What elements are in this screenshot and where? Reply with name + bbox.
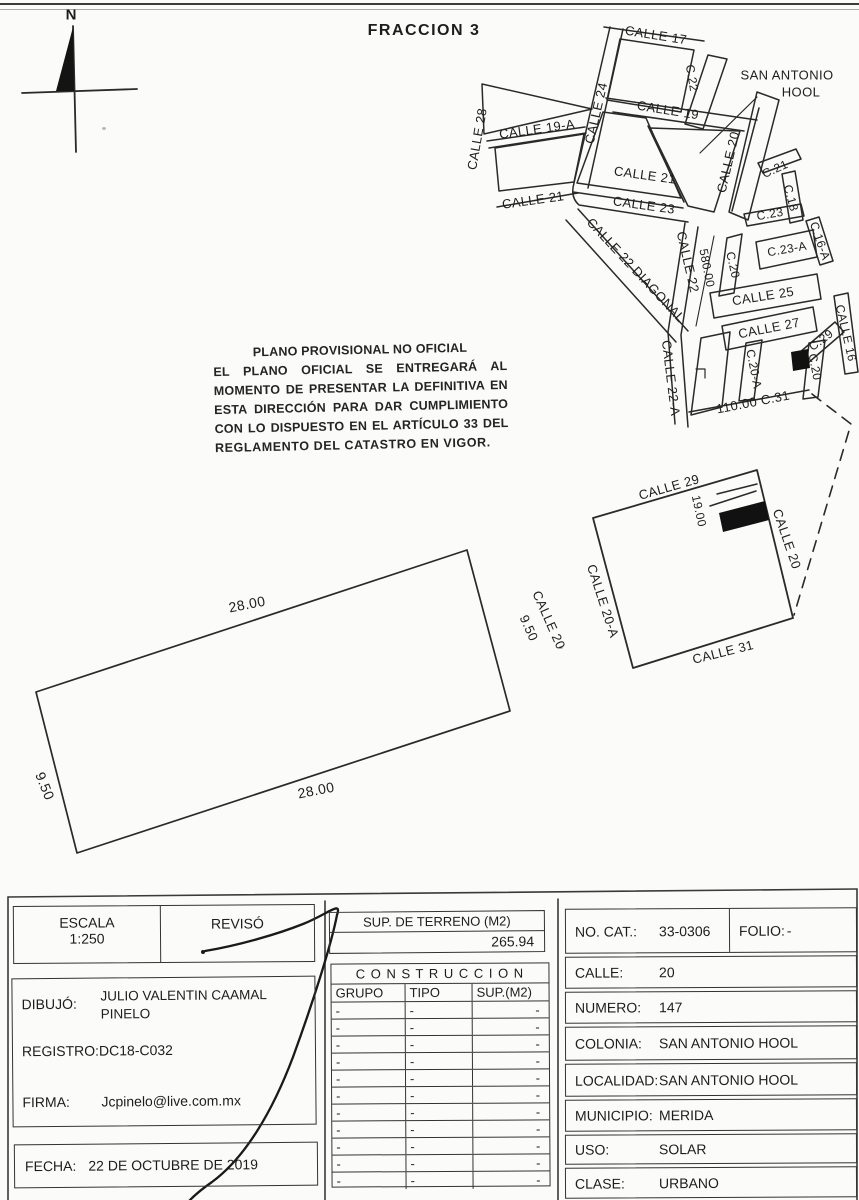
- cell: -: [332, 1053, 405, 1069]
- cell: -: [332, 1036, 405, 1052]
- cell: -: [472, 1035, 549, 1051]
- cadastre-row-numero: NUMERO: 147: [565, 990, 857, 1024]
- cell: -: [405, 1155, 472, 1171]
- cell: -: [405, 1138, 472, 1154]
- cell: -: [472, 1120, 549, 1136]
- colonia-label: COLONIA:: [566, 1035, 659, 1051]
- table-row: ---: [332, 1086, 549, 1104]
- cell: -: [332, 1002, 405, 1018]
- cadastre-row-municipio: MUNICIPIO: MERIDA: [565, 1098, 857, 1132]
- terreno-box: SUP. DE TERRENO (M2) 265.94: [329, 910, 545, 954]
- cell: -: [472, 1001, 549, 1017]
- north-label: N: [66, 7, 77, 24]
- clase-label: CLASE:: [566, 1175, 659, 1191]
- registro-label: REGISTRO:: [22, 1043, 99, 1060]
- table-row: ---: [332, 1052, 549, 1070]
- page-title: FRACCION 3: [368, 22, 481, 40]
- cadastre-row-clase: CLASE: URBANO: [565, 1166, 857, 1199]
- cell: -: [332, 1019, 405, 1035]
- fecha-value: 22 DE OCTUBRE DE 2019: [88, 1156, 258, 1173]
- cadastre-row-uso: USO: SOLAR: [565, 1133, 857, 1165]
- cell: -: [405, 1036, 472, 1052]
- numero-value: 147: [659, 999, 682, 1015]
- table-row: ---: [333, 1171, 550, 1189]
- table-row: ---: [332, 1018, 549, 1036]
- uso-value: SOLAR: [659, 1141, 707, 1157]
- cell: -: [333, 1172, 406, 1189]
- cadastre-row-no-cat: NO. CAT.: 33-0306 FOLIO: -: [565, 907, 857, 954]
- table-row: ---: [332, 1120, 549, 1138]
- calle-label: CALLE:: [566, 964, 659, 980]
- scanned-cadastral-plan: FRACCION 3 N PLANO PROVISIONAL NO OFICIA…: [0, 0, 859, 1200]
- municipio-value: MERIDA: [659, 1107, 714, 1123]
- disclaimer-block: PLANO PROVISIONAL NO OFICIAL EL PLANO OF…: [213, 338, 509, 458]
- cell: -: [472, 1137, 549, 1153]
- fecha-label: FECHA:: [25, 1158, 76, 1174]
- localidad-value: SAN ANTONIO HOOL: [659, 1071, 798, 1088]
- construccion-header-row: GRUPO TIPO SUP.(M2): [332, 983, 549, 1002]
- terreno-value: 265.94: [330, 931, 544, 951]
- cell: -: [406, 1172, 473, 1189]
- colonia-value: SAN ANTONIO HOOL: [659, 1035, 798, 1052]
- table-row: ---: [332, 1154, 549, 1172]
- uso-label: USO:: [566, 1141, 659, 1157]
- construccion-table: C O N S T R U C C I O N GRUPO TIPO SUP.(…: [330, 962, 550, 1187]
- cell: -: [332, 1121, 405, 1137]
- scan-speck: [102, 127, 106, 130]
- column-header: SUP.(M2): [472, 983, 549, 1000]
- escala-label: ESCALA: [14, 914, 160, 931]
- dashed-leader-line: [794, 394, 851, 615]
- cell: -: [332, 1087, 405, 1103]
- no-cat-value: 33-0306: [659, 923, 710, 939]
- cell: -: [405, 1087, 472, 1103]
- cadastre-row-localidad: LOCALIDAD: SAN ANTONIO HOOL: [565, 1062, 857, 1097]
- dibujo-value: JULIO VALENTIN CAAMAL: [100, 986, 266, 1005]
- cell: -: [332, 1104, 405, 1120]
- cell: -: [405, 1053, 472, 1069]
- cell: -: [405, 1121, 472, 1137]
- escala-reviso-box: ESCALA 1:250 REVISÓ: [13, 904, 315, 964]
- column-header: TIPO: [405, 984, 472, 1001]
- cell: -: [332, 1155, 405, 1171]
- cell: -: [472, 1018, 549, 1034]
- cell: -: [405, 1019, 472, 1035]
- terreno-header: SUP. DE TERRENO (M2): [330, 911, 544, 933]
- registro-value: DC18-C032: [99, 1042, 173, 1059]
- calle-value: 20: [659, 964, 675, 980]
- cell: -: [472, 1086, 549, 1102]
- district-label: HOOL: [782, 85, 820, 100]
- parcel-outline: [36, 550, 510, 853]
- subject-lot-marker-block: [719, 501, 769, 532]
- numero-label: NUMERO:: [566, 999, 659, 1015]
- north-arrow-icon: [22, 26, 137, 152]
- cell: -: [472, 1052, 549, 1068]
- escala-value: 1:250: [14, 930, 160, 947]
- dibujo-value: PINELO: [101, 1004, 267, 1023]
- table-row: ---: [332, 1001, 549, 1019]
- localidad-label: LOCALIDAD:: [566, 1072, 659, 1088]
- dibujo-box: DIBUJÓ: JULIO VALENTIN CAAMAL PINELO REG…: [11, 976, 316, 1128]
- cell: -: [472, 1154, 549, 1170]
- municipio-label: MUNICIPIO:: [566, 1107, 659, 1123]
- dibujo-label: DIBUJÓ:: [22, 996, 77, 1012]
- cell: -: [332, 1070, 405, 1086]
- cell: -: [332, 1138, 405, 1154]
- table-row: ---: [332, 1035, 549, 1053]
- cell: -: [473, 1171, 550, 1188]
- reviso-label: REVISÓ: [161, 915, 314, 932]
- column-header: GRUPO: [332, 984, 405, 1001]
- fecha-box: FECHA: 22 DE OCTUBRE DE 2019: [14, 1142, 318, 1189]
- cadastre-row-calle: CALLE: 20: [565, 955, 857, 989]
- cadastre-row-colonia: COLONIA: SAN ANTONIO HOOL: [565, 1025, 857, 1061]
- no-cat-label: NO. CAT.:: [566, 923, 659, 939]
- cell: -: [405, 1070, 472, 1086]
- folio-value: -: [787, 922, 792, 938]
- table-row: ---: [332, 1137, 549, 1155]
- cell: -: [472, 1103, 549, 1119]
- firma-value: Jcpinelo@live.com.mx: [101, 1092, 241, 1109]
- cell: -: [405, 1104, 472, 1120]
- district-label: SAN ANTONIO: [740, 68, 833, 83]
- table-row: ---: [332, 1103, 549, 1121]
- folio-label: FOLIO:: [739, 922, 785, 938]
- cell: -: [472, 1069, 549, 1085]
- clase-value: URBANO: [659, 1174, 719, 1190]
- table-row: ---: [332, 1069, 549, 1087]
- construccion-title: C O N S T R U C C I O N: [331, 963, 548, 984]
- firma-label: FIRMA:: [22, 1094, 70, 1110]
- cell: -: [405, 1002, 472, 1018]
